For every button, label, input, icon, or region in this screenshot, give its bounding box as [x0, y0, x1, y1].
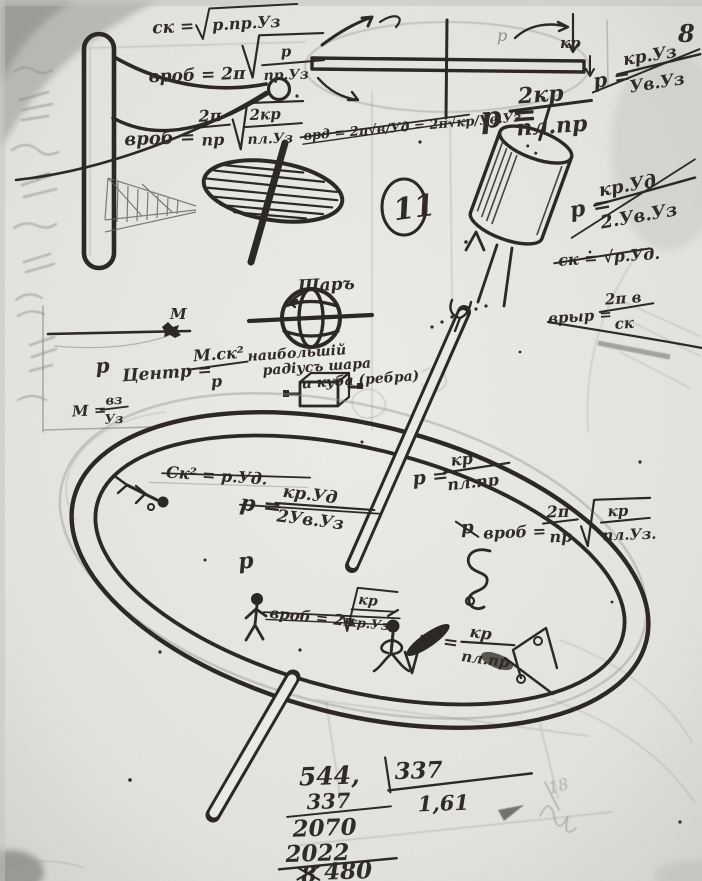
paper-grain: [0, 0, 702, 881]
manuscript-canvas: 11 р кр Шаръ: [0, 0, 702, 881]
manuscript-page: 11 р кр Шаръ: [0, 0, 702, 881]
